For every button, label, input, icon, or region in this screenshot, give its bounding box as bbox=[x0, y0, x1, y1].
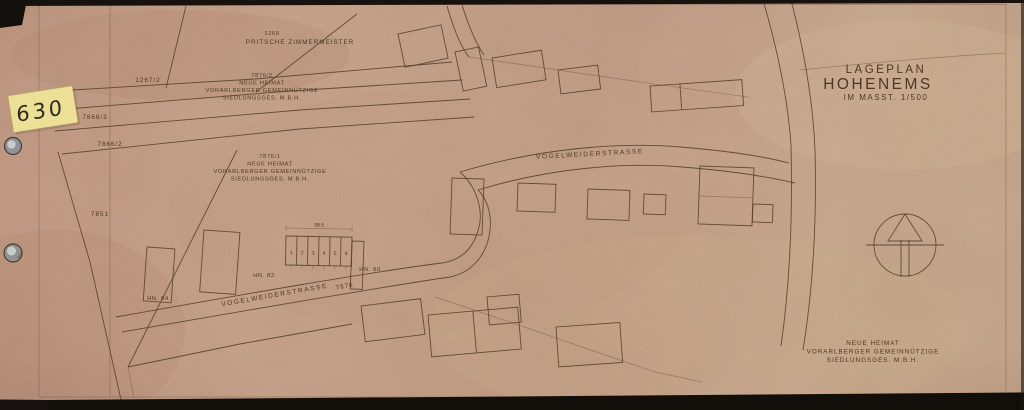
svg-text:IM MASST. 1/500: IM MASST. 1/500 bbox=[844, 93, 929, 102]
unit-number-6: 6 bbox=[345, 251, 348, 257]
svg-text:VORARLBERGER GEMEINNÜTZIGE: VORARLBERGER GEMEINNÜTZIGE bbox=[214, 168, 327, 175]
unit-number-2: 2 bbox=[301, 250, 304, 256]
parcel-7851: 7851 bbox=[91, 211, 109, 218]
svg-text:7876/1: 7876/1 bbox=[259, 154, 280, 160]
parcel-1269-owner: PRITSCHE ZIMMERMEISTER bbox=[246, 39, 354, 46]
parcel-1267-2: 1267/2 bbox=[135, 77, 160, 84]
svg-text:SIEDLUNGSGES. M.B.H.: SIEDLUNGSGES. M.B.H. bbox=[827, 357, 919, 364]
svg-text:NEUE HEIMAT: NEUE HEIMAT bbox=[247, 162, 293, 168]
svg-text:NEUE HEIMAT: NEUE HEIMAT bbox=[846, 340, 900, 347]
unit-number-5: 5 bbox=[334, 251, 337, 257]
unit-number-1: 1 bbox=[290, 250, 293, 256]
parcel-7866-2: 7866/2 bbox=[97, 141, 122, 148]
svg-text:LAGEPLAN: LAGEPLAN bbox=[846, 64, 927, 76]
punch-hole-bottom bbox=[4, 244, 22, 262]
svg-text:VORARLBERGER GEMEINNÜTZIGE: VORARLBERGER GEMEINNÜTZIGE bbox=[807, 348, 940, 356]
svg-text:7876/2: 7876/2 bbox=[251, 73, 272, 79]
unit-number-3: 3 bbox=[312, 250, 315, 256]
scanned-site-plan: 38.5 1 2 3 4 5 6 1269 PRITSCHE ZIMMERMEI… bbox=[0, 0, 1024, 410]
parcel-7866-3: 7866/3 bbox=[82, 114, 107, 121]
house-number-84: HN. 84 bbox=[147, 296, 169, 302]
house-number-80: HN. 80 bbox=[359, 267, 381, 273]
svg-text:SIEDLUNGSGES. M.B.H.: SIEDLUNGSGES. M.B.H. bbox=[223, 96, 301, 102]
parcel-1269-number: 1269 bbox=[264, 31, 279, 37]
unit-number-4: 4 bbox=[323, 251, 326, 257]
svg-text:HOHENEMS: HOHENEMS bbox=[823, 76, 933, 93]
punch-hole-top bbox=[5, 138, 22, 155]
svg-text:SIEDLUNGSGES. M.B.H.: SIEDLUNGSGES. M.B.H. bbox=[231, 177, 309, 183]
svg-text:VORARLBERGER GEMEINNÜTZIGE: VORARLBERGER GEMEINNÜTZIGE bbox=[206, 87, 319, 94]
dimension-label: 38.5 bbox=[314, 222, 324, 228]
house-number-82: HN. 82 bbox=[253, 273, 275, 279]
svg-text:NEUE HEIMAT: NEUE HEIMAT bbox=[239, 81, 285, 87]
